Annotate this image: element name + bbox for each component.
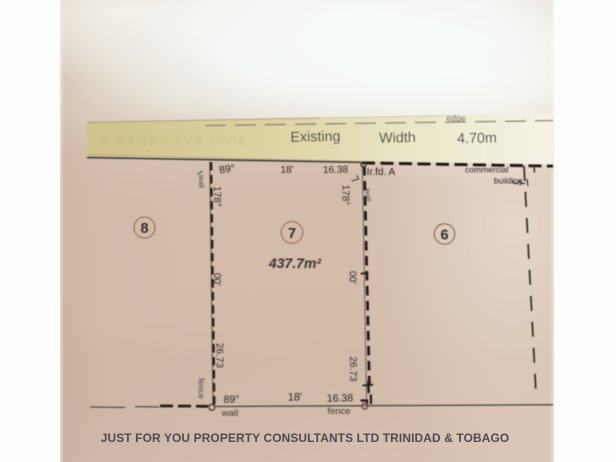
svg-text:18': 18' (288, 392, 303, 404)
svg-text:26.73: 26.73 (347, 356, 358, 381)
svg-text:6: 6 (440, 227, 448, 243)
svg-text:178°: 178° (339, 185, 350, 206)
svg-text:fence: fence (327, 406, 350, 417)
svg-text:26.73: 26.73 (214, 343, 225, 368)
svg-text:wall: wall (363, 188, 372, 202)
svg-text:00': 00' (347, 271, 358, 284)
svg-text:89°: 89° (218, 162, 236, 176)
svg-text:89°: 89° (223, 394, 239, 406)
svg-text:437.7m²: 437.7m² (268, 255, 321, 271)
svg-text:S HAMPS AVE Orno: S HAMPS AVE Orno (100, 131, 247, 149)
svg-text:Width: Width (379, 130, 416, 147)
svg-text:16.38: 16.38 (327, 392, 354, 404)
svg-text:8: 8 (140, 221, 148, 237)
svg-text:178°: 178° (211, 186, 222, 207)
svg-text:edge: edge (447, 113, 466, 123)
svg-text:Existing: Existing (290, 129, 340, 146)
svg-text:00': 00' (211, 273, 222, 286)
svg-text:16.38: 16.38 (323, 165, 349, 176)
svg-text:fence: fence (197, 378, 207, 399)
svg-text:wall: wall (221, 408, 238, 419)
svg-text:Ir.fd. A: Ir.fd. A (367, 167, 396, 178)
svg-text:commercial: commercial (465, 164, 509, 174)
svg-text:18': 18' (280, 165, 293, 176)
svg-text:wall: wall (197, 174, 206, 188)
svg-text:7: 7 (288, 226, 296, 242)
svg-text:4.70m: 4.70m (457, 130, 497, 147)
